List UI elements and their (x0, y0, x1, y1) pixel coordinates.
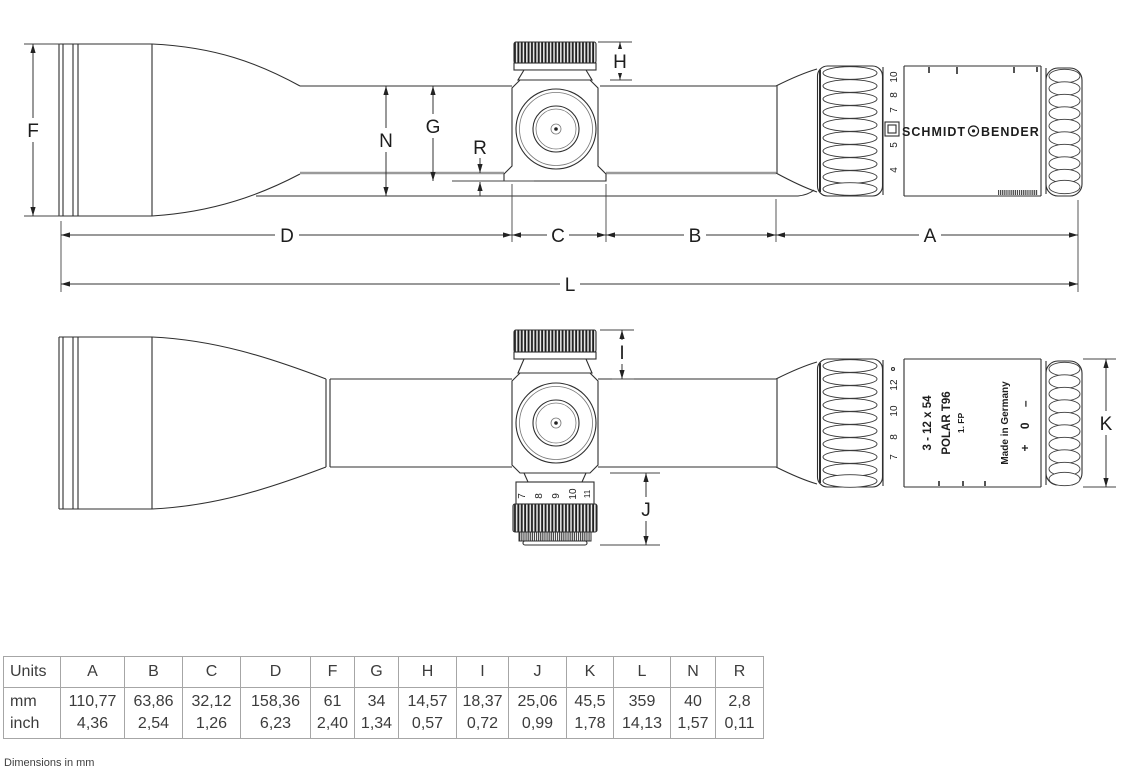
mag-number: 4 (889, 167, 900, 173)
top-magnification-scale: 7 8 10 12 (883, 359, 904, 487)
value-inch-F: 2,40 (311, 713, 355, 739)
parallax-number: 11 (583, 489, 592, 498)
body-marking (1013, 67, 1015, 73)
rail-bottom-line (256, 190, 814, 196)
top-windage-turret (514, 330, 596, 373)
dim-label-N: N (379, 131, 393, 152)
parallax-number: 9 (551, 493, 562, 499)
mag-number: 7 (889, 454, 900, 460)
model-name-text: POLAR T96 (941, 391, 953, 454)
dim-label-R: R (473, 138, 487, 159)
unit-label-inch: inch (4, 713, 61, 739)
dim-label-C: C (551, 226, 565, 247)
dim-label-K: K (1100, 414, 1113, 435)
side-magnification-scale: 4 5 7 8 10 (883, 66, 904, 196)
side-turret-housing (504, 80, 606, 181)
mag-number: 10 (889, 405, 900, 417)
side-eyepiece-body: SCHMIDT BENDER (902, 66, 1046, 196)
value-inch-A: 4,36 (61, 713, 125, 739)
header-I: I (457, 657, 509, 688)
body-marking (956, 67, 958, 74)
header-K: K (567, 657, 614, 688)
dim-H: H (598, 42, 632, 80)
table-row-inch: inch 4,36 2,54 1,26 6,23 2,40 1,34 0,57 … (4, 713, 764, 739)
unit-label-mm: mm (4, 688, 61, 714)
table-row-mm: mm 110,77 63,86 32,12 158,36 61 34 14,57… (4, 688, 764, 714)
value-inch-R: 0,11 (716, 713, 764, 739)
value-mm-G: 34 (355, 688, 399, 714)
header-R: R (716, 657, 764, 688)
header-units: Units (4, 657, 61, 688)
dim-label-G: G (426, 117, 441, 138)
header-J: J (509, 657, 567, 688)
mag-number: 5 (889, 142, 900, 148)
parallax-number: 8 (534, 493, 545, 499)
header-G: G (355, 657, 399, 688)
value-inch-B: 2,54 (125, 713, 183, 739)
dim-F: F (23, 44, 60, 216)
top-parallax-turret: 7 8 9 10 11 (513, 473, 597, 545)
header-B: B (125, 657, 183, 688)
dim-label-J: J (641, 500, 651, 521)
dim-label-F: F (27, 121, 39, 142)
value-mm-F: 61 (311, 688, 355, 714)
dim-J: J (600, 473, 660, 545)
value-inch-I: 0,72 (457, 713, 509, 739)
dimensions-footnote: Dimensions in mm (4, 757, 94, 769)
parallax-number: 7 (517, 493, 528, 499)
dim-label-D: D (280, 226, 294, 247)
value-mm-A: 110,77 (61, 688, 125, 714)
brand-name-bender: BENDER (981, 125, 1040, 139)
serial-marking (998, 190, 1038, 195)
mag-number: 12 (889, 379, 900, 391)
value-mm-C: 32,12 (183, 688, 241, 714)
dim-D: D (61, 184, 512, 292)
parallax-number: 10 (568, 488, 579, 500)
value-mm-I: 18,37 (457, 688, 509, 714)
header-L: L (614, 657, 671, 688)
top-diopter-ring (1046, 361, 1082, 486)
dim-G: G (422, 86, 444, 181)
table-header-row: Units A B C D F G H I J K L N R (4, 657, 764, 688)
value-inch-N: 1,57 (671, 713, 716, 739)
mag-number: 8 (889, 92, 900, 98)
top-turret-housing (512, 373, 598, 473)
side-objective-bell (59, 44, 300, 216)
dim-label-B: B (689, 226, 702, 247)
dim-A: A (776, 200, 1078, 292)
value-mm-R: 2,8 (716, 688, 764, 714)
side-elevation-turret (514, 42, 596, 80)
body-marking (984, 481, 986, 486)
header-F: F (311, 657, 355, 688)
top-view: 7 8 9 10 11 (59, 330, 1117, 545)
value-mm-K: 45,5 (567, 688, 614, 714)
body-marking (928, 67, 930, 73)
mag-number: 8 (889, 434, 900, 440)
side-eyepiece: 4 5 7 8 10 SCHMIDT (776, 66, 1082, 196)
value-mm-L: 359 (614, 688, 671, 714)
focal-plane-text: 1. FP (956, 413, 966, 434)
side-zoom-ring (818, 66, 883, 196)
value-inch-G: 1,34 (355, 713, 399, 739)
dim-I: I (600, 330, 634, 379)
value-inch-D: 6,23 (241, 713, 311, 739)
dim-L: L (61, 272, 1078, 296)
value-inch-L: 14,13 (614, 713, 671, 739)
side-diopter-ring (1046, 68, 1082, 196)
body-marking (962, 481, 964, 486)
header-C: C (183, 657, 241, 688)
value-inch-C: 1,26 (183, 713, 241, 739)
made-in-germany-text: Made in Germany (1000, 381, 1011, 465)
technical-drawing-svg: 4 5 7 8 10 SCHMIDT (0, 0, 1141, 620)
top-eyepiece: 7 8 10 12 3 - 12 x 54 POLAR T96 1. FP Ma… (776, 359, 1082, 487)
header-N: N (671, 657, 716, 688)
dim-label-I: I (619, 343, 624, 364)
value-mm-J: 25,06 (509, 688, 567, 714)
index-dot (892, 368, 895, 371)
header-H: H (399, 657, 457, 688)
top-zoom-ring (818, 359, 883, 487)
dim-N: N (375, 86, 397, 196)
value-inch-K: 1,78 (567, 713, 614, 739)
value-mm-H: 14,57 (399, 688, 457, 714)
value-mm-D: 158,36 (241, 688, 311, 714)
value-mm-B: 63,86 (125, 688, 183, 714)
dim-label-H: H (613, 52, 627, 73)
schmidt-bender-logo-icon (969, 126, 979, 136)
dimensions-table: Units A B C D F G H I J K L N R mm 110,7… (3, 656, 764, 739)
body-marking (938, 481, 940, 486)
header-D: D (241, 657, 311, 688)
brand-name-schmidt: SCHMIDT (902, 125, 966, 139)
top-objective-bell (59, 337, 330, 509)
body-marking (1036, 67, 1038, 72)
dim-K: K (1083, 359, 1117, 487)
mag-number: 7 (889, 107, 900, 113)
value-mm-N: 40 (671, 688, 716, 714)
dim-label-A: A (924, 226, 937, 247)
mag-number: 10 (889, 71, 900, 83)
index-window (885, 122, 899, 136)
scope-dimension-drawing: 4 5 7 8 10 SCHMIDT (0, 0, 1141, 781)
value-inch-J: 0,99 (509, 713, 567, 739)
dim-label-L: L (565, 275, 576, 296)
top-eyepiece-body: 3 - 12 x 54 POLAR T96 1. FP Made in Germ… (904, 359, 1046, 487)
dim-B: B (606, 199, 776, 247)
value-inch-H: 0,57 (399, 713, 457, 739)
model-magnification-text: 3 - 12 x 54 (922, 395, 934, 451)
side-view: 4 5 7 8 10 SCHMIDT (23, 42, 1082, 296)
diopter-marks-text: + 0 – (1018, 394, 1032, 451)
header-A: A (61, 657, 125, 688)
dim-C: C (512, 184, 606, 247)
